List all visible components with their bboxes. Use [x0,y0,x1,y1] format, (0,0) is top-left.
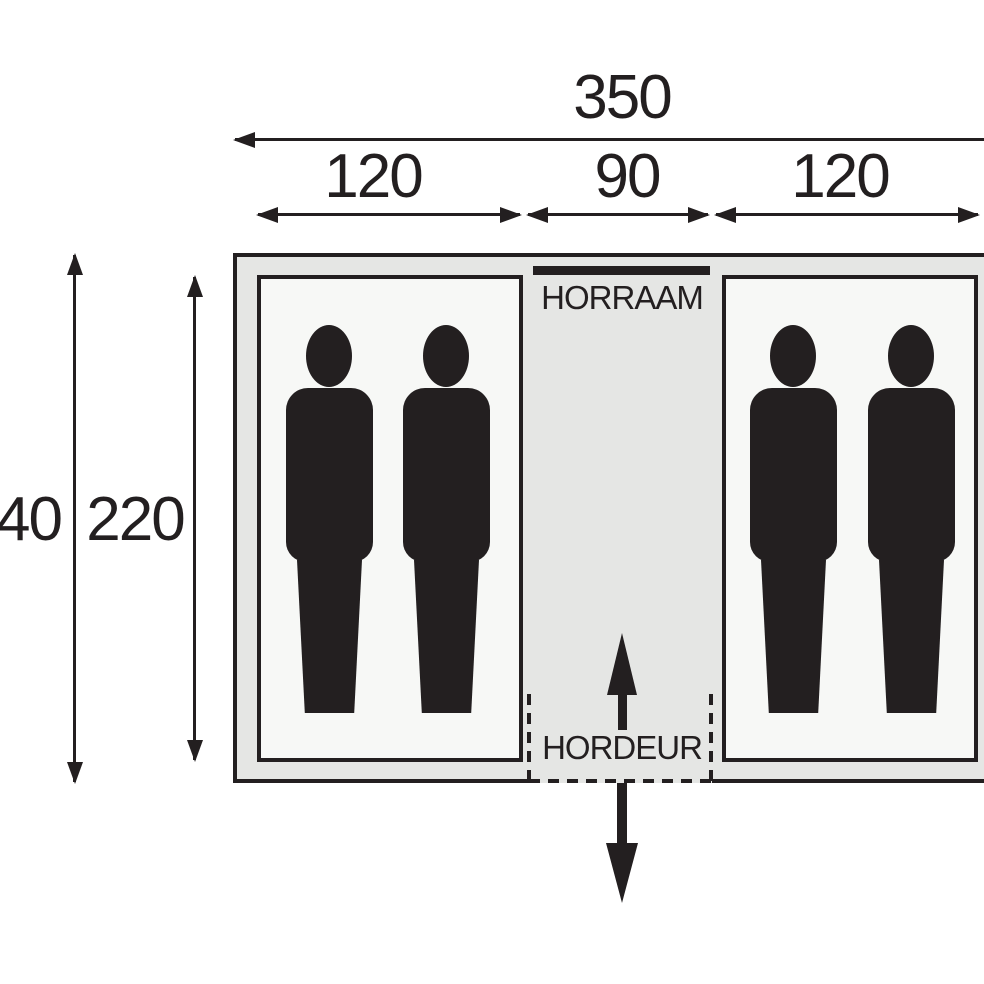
tent-floorplan-diagram: 350 120 90 120 40 220 HORRAAM HORDEUR [0,0,984,984]
person-icon [286,325,373,713]
left-section-arrow-icon [258,213,520,216]
right-section-width-label: 120 [740,143,940,211]
total-width-arrow-icon [235,138,984,141]
window-bar-icon [533,266,710,275]
tent-bottom-wall-left [233,779,529,783]
inner-depth-arrow-icon [193,277,196,760]
right-section-arrow-icon [716,213,978,216]
window-label: HORRAAM [522,281,722,315]
door-label: HORDEUR [522,731,722,765]
person-icon [403,325,490,713]
center-section-arrow-icon [528,213,708,216]
inner-depth-label: 220 [85,486,185,554]
outer-depth-arrow-icon [73,255,76,782]
center-section-width-label: 90 [527,143,727,211]
left-section-width-label: 120 [273,143,473,211]
person-icon [868,325,955,713]
tent-bottom-wall-right [712,779,984,783]
person-icon [750,325,837,713]
outer-depth-label: 40 [0,486,66,554]
total-width-label: 350 [522,64,722,132]
